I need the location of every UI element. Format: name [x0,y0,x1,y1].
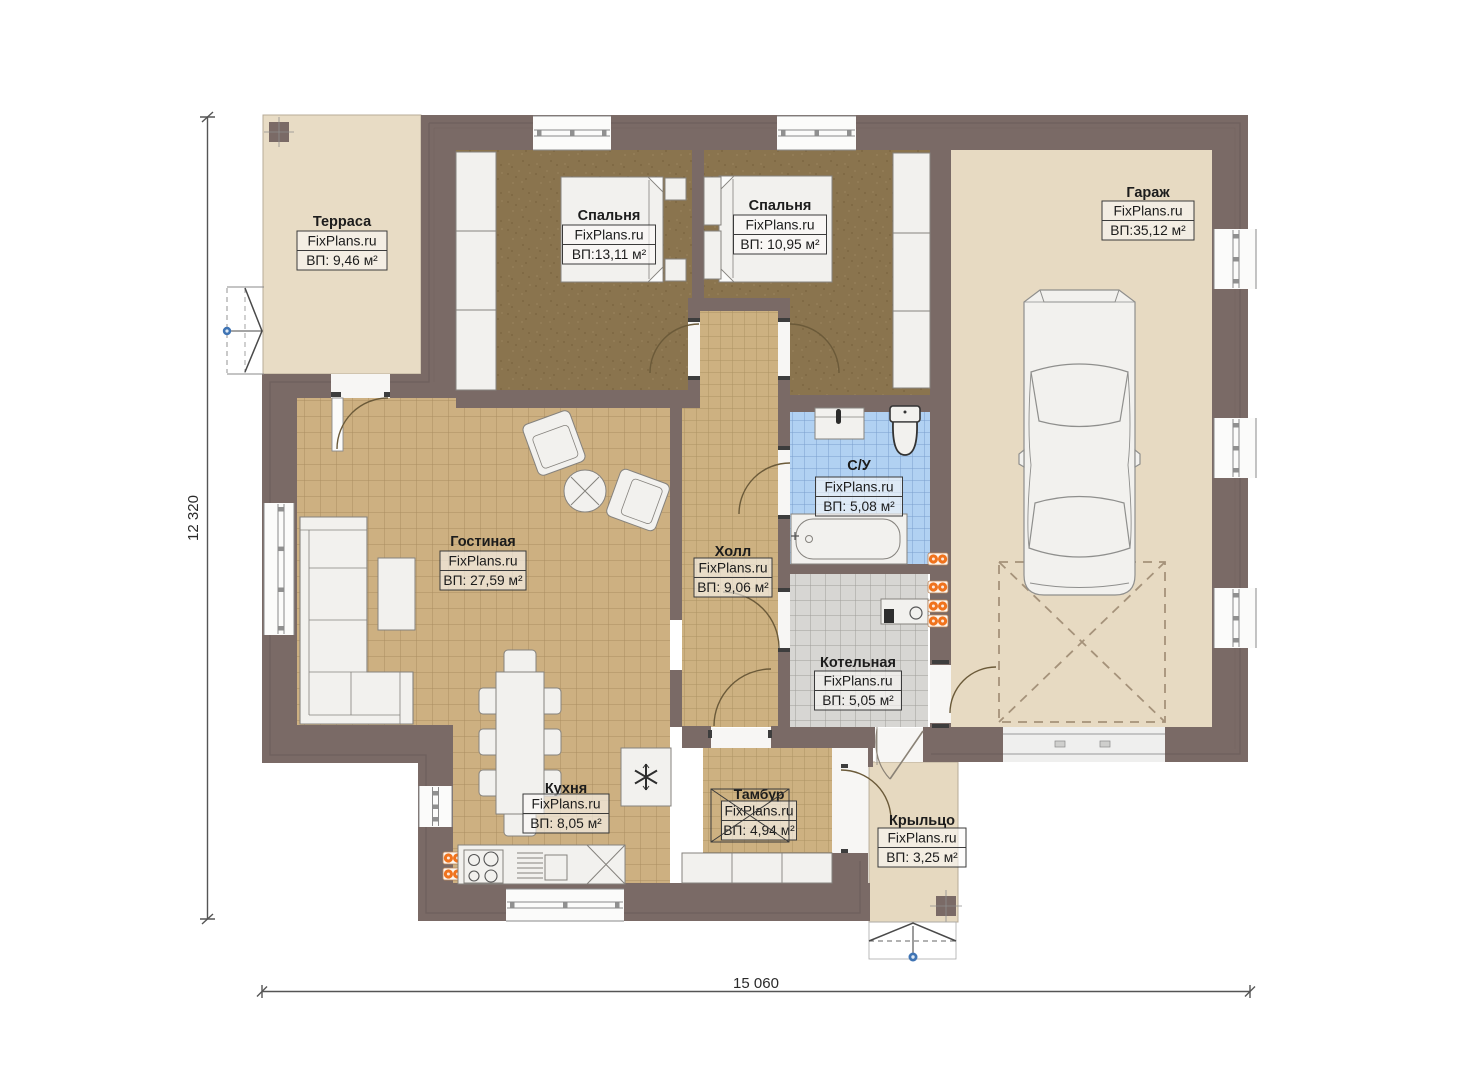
svg-text:FixPlans.ru: FixPlans.ru [887,831,956,846]
svg-text:Терраса: Терраса [313,214,372,230]
svg-text:ВП: 8,05 м²: ВП: 8,05 м² [530,816,602,831]
svg-text:С/У: С/У [847,458,872,474]
svg-text:ВП: 27,59 м²: ВП: 27,59 м² [443,573,523,588]
svg-text:Спальня: Спальня [749,198,812,214]
svg-text:FixPlans.ru: FixPlans.ru [531,797,600,812]
svg-text:FixPlans.ru: FixPlans.ru [448,554,517,569]
svg-text:ВП: 3,25 м²: ВП: 3,25 м² [886,850,958,865]
svg-text:ВП: 10,95 м²: ВП: 10,95 м² [740,237,820,252]
svg-text:ВП: 5,08 м²: ВП: 5,08 м² [823,499,895,514]
svg-text:FixPlans.ru: FixPlans.ru [698,561,767,576]
svg-text:Крыльцо: Крыльцо [889,813,955,829]
svg-text:Гостиная: Гостиная [450,534,516,550]
svg-text:FixPlans.ru: FixPlans.ru [824,480,893,495]
svg-text:Гараж: Гараж [1126,185,1170,201]
svg-text:ВП: 9,06 м²: ВП: 9,06 м² [697,580,769,595]
svg-text:FixPlans.ru: FixPlans.ru [745,218,814,233]
svg-text:FixPlans.ru: FixPlans.ru [307,234,376,249]
svg-text:ВП:35,12 м²: ВП:35,12 м² [1110,223,1186,238]
svg-text:ВП: 9,46 м²: ВП: 9,46 м² [306,253,378,268]
svg-text:15 060: 15 060 [733,975,779,992]
svg-text:Тамбур: Тамбур [734,786,785,802]
svg-text:ВП:13,11 м²: ВП:13,11 м² [572,247,647,262]
svg-text:ВП: 4,94 м²: ВП: 4,94 м² [723,823,795,838]
svg-text:FixPlans.ru: FixPlans.ru [1113,204,1182,219]
svg-text:12 320: 12 320 [185,495,202,541]
svg-text:ВП: 5,05 м²: ВП: 5,05 м² [822,693,894,708]
svg-text:FixPlans.ru: FixPlans.ru [823,674,892,689]
svg-text:FixPlans.ru: FixPlans.ru [574,228,643,243]
svg-text:Спальня: Спальня [578,208,641,224]
svg-text:Котельная: Котельная [820,655,896,671]
